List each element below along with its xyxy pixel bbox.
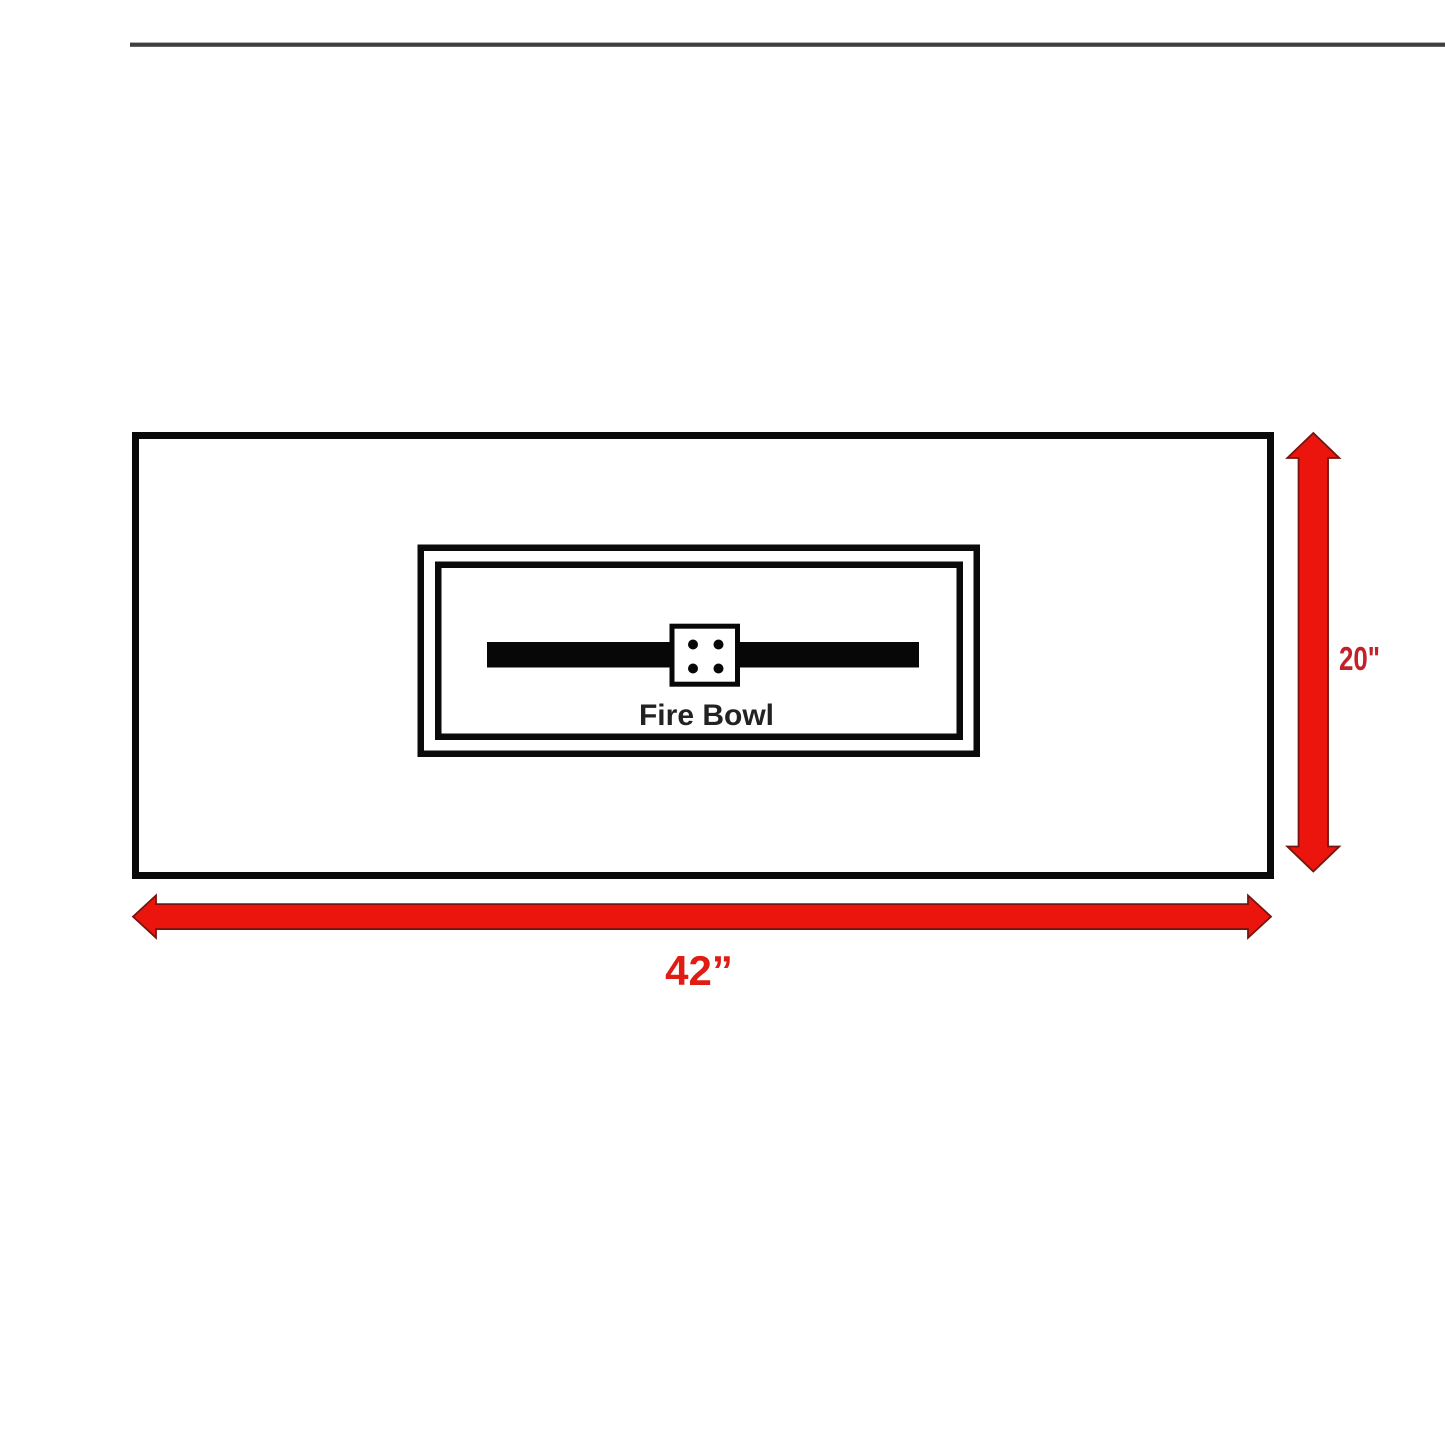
svg-text:Fire Bowl: Fire Bowl [639,699,774,732]
svg-text:42”: 42” [665,947,733,994]
svg-text:20": 20" [1339,640,1380,677]
